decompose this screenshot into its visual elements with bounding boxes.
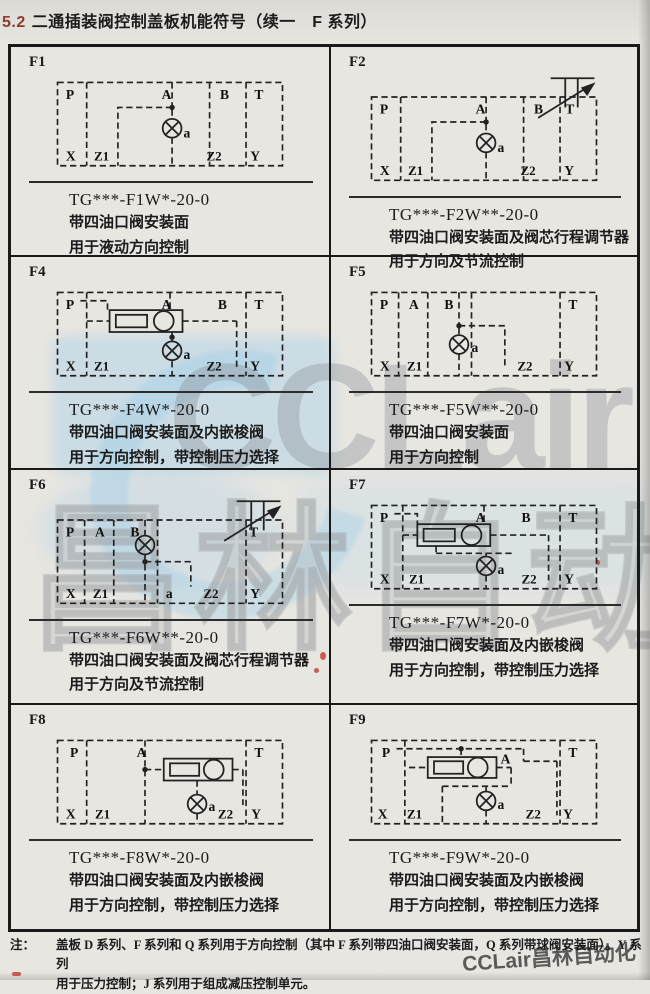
port-label: A — [137, 745, 147, 760]
port-label: X — [378, 807, 388, 822]
port-label: B — [534, 102, 543, 117]
cell-separator — [29, 391, 313, 393]
port-label: T — [568, 510, 577, 525]
model-code: TG***-F4W*-20-0 — [69, 400, 329, 420]
cell-label: F7 — [349, 477, 637, 494]
port-label: Z1 — [409, 572, 424, 587]
f9-schematic: P A T X Z1 a Z2 Y — [359, 730, 609, 832]
port-label: X — [66, 807, 76, 822]
port-label: Z1 — [408, 163, 423, 178]
cell-label: F4 — [29, 264, 329, 281]
footnote-line: 用于压力控制；J 系列用于组成减压控制单元。 — [0, 975, 650, 994]
port-label: X — [380, 359, 390, 374]
description-line: 用于方向控制，带控制压力选择 — [389, 895, 637, 918]
port-label: Z1 — [94, 359, 109, 374]
model-code: TG***-F5W**-20-0 — [389, 400, 637, 420]
port-label: Z2 — [203, 586, 218, 601]
port-label: a — [209, 799, 216, 814]
port-label: Z2 — [521, 572, 536, 587]
cell-f7: F7 P A B T X Z1 a Z — [331, 470, 637, 705]
port-label: P — [380, 102, 388, 117]
cell-label: F9 — [349, 712, 637, 729]
port-label: X — [380, 163, 390, 178]
f2-schematic: P A B T X Z1 a Z2 Y — [359, 72, 609, 189]
footnote: 注： 盖板 D 系列、F 系列和 Q 系列用于方向控制（其中 F 系列带四油口阀… — [0, 936, 650, 994]
cell-f5: F5 P A B T X Z1 a Z2 Y TG***-F5W**-20-0 … — [331, 257, 637, 470]
port-label: A — [95, 525, 105, 540]
port-label: Z2 — [520, 163, 535, 178]
cell-label: F2 — [349, 54, 637, 71]
port-label: a — [166, 586, 173, 601]
cell-separator — [29, 181, 313, 183]
description-line: 带四油口阀安装面及内嵌梭阀 — [69, 870, 329, 893]
cell-separator — [349, 604, 621, 606]
diagram-lines — [58, 740, 283, 823]
port-label: Z1 — [94, 149, 109, 164]
port-label: Z1 — [93, 586, 108, 601]
port-label: T — [568, 297, 577, 312]
diagram-lines — [372, 78, 597, 180]
port-label: P — [380, 510, 388, 525]
port-label: Z1 — [407, 359, 422, 374]
port-label: B — [220, 87, 229, 102]
port-label: Y — [564, 572, 574, 587]
cell-label: F1 — [29, 54, 329, 71]
model-code: TG***-F8W*-20-0 — [69, 848, 329, 868]
port-label: X — [380, 572, 390, 587]
port-label: A — [476, 510, 486, 525]
f7-schematic: P A B T X Z1 a Z2 Y — [359, 495, 609, 597]
port-label: B — [218, 297, 227, 312]
port-label: Y — [250, 586, 260, 601]
cell-separator — [349, 196, 621, 198]
description-line: 用于方向控制 — [389, 447, 637, 470]
description-line: 用于方向控制，带控制压力选择 — [69, 895, 329, 918]
cell-label: F5 — [349, 264, 637, 281]
f4-schematic: P A B T X Z1 a Z2 Y — [45, 282, 295, 384]
port-label: T — [249, 525, 258, 540]
model-code: TG***-F6W**-20-0 — [69, 628, 329, 648]
port-label: a — [498, 562, 505, 577]
port-label: A — [501, 751, 511, 766]
description-line: 带四油口阀安装面及内嵌梭阀 — [389, 870, 637, 893]
port-label: P — [66, 525, 74, 540]
model-code: TG***-F2W**-20-0 — [389, 205, 637, 225]
cell-f4: F4 P A B T X Z1 — [11, 257, 331, 470]
port-label: P — [380, 297, 388, 312]
port-label: B — [521, 510, 530, 525]
page-title: 5.2二通插装阀控制盖板机能符号（续一 F 系列） — [2, 8, 377, 32]
port-label: B — [444, 297, 453, 312]
description-line: 带四油口阀安装面及阀芯行程调节器 — [69, 650, 329, 673]
description-line: 带四油口阀安装面及内嵌梭阀 — [69, 422, 329, 445]
shuttle-valve-icon — [164, 759, 233, 781]
cell-f9: F9 P A T X Z1 a — [331, 705, 637, 929]
cell-separator — [29, 839, 313, 841]
diagram-lines — [372, 292, 597, 375]
port-label: a — [498, 140, 505, 155]
port-label: a — [184, 347, 191, 362]
cell-f1: F1 P A B T X Z1 a Z2 Y TG***-F1W*-20-0 带… — [11, 47, 331, 257]
port-label: X — [66, 149, 76, 164]
port-label: Y — [563, 807, 573, 822]
description-line: 带四油口阀安装面及内嵌梭阀 — [389, 635, 637, 658]
port-label: T — [254, 745, 263, 760]
cell-label: F8 — [29, 712, 329, 729]
port-label: a — [472, 340, 479, 355]
port-label: Z1 — [95, 807, 110, 822]
port-label: P — [66, 297, 74, 312]
port-label: T — [254, 87, 263, 102]
port-label: Y — [564, 163, 574, 178]
catalog-page: { "page": {"background": "#e7e6e1", "tab… — [0, 0, 650, 980]
port-label: A — [476, 102, 486, 117]
port-label: T — [565, 102, 574, 117]
port-label: a — [184, 126, 191, 141]
model-code: TG***-F1W*-20-0 — [69, 190, 329, 210]
port-label: a — [498, 797, 505, 812]
port-label: T — [568, 745, 577, 760]
cell-separator — [349, 839, 621, 841]
port-label: Z1 — [407, 807, 422, 822]
cell-separator — [349, 391, 621, 393]
port-label: A — [162, 87, 172, 102]
port-label: Z2 — [526, 807, 541, 822]
port-label: T — [254, 297, 263, 312]
description-line: 用于方向控制，带控制压力选择 — [389, 660, 637, 683]
port-label: Y — [564, 359, 574, 374]
port-label: Y — [250, 359, 260, 374]
port-label: P — [70, 745, 78, 760]
shuttle-valve-icon — [428, 757, 497, 778]
port-label: P — [382, 745, 390, 760]
model-code: TG***-F9W*-20-0 — [389, 848, 637, 868]
cell-f2: F2 P A B T X Z1 a Z2 Y — [331, 47, 637, 257]
section-title-text: 二通插装阀控制盖板机能符号（续一 F 系列） — [32, 14, 377, 31]
port-label: P — [66, 87, 74, 102]
description-line: 用于液动方向控制 — [69, 237, 329, 260]
cell-label: F6 — [29, 477, 329, 494]
f6-schematic: P A B T X Z1 a Z2 Y — [45, 495, 295, 612]
port-label: Z2 — [206, 149, 221, 164]
port-label: A — [409, 297, 419, 312]
description-line: 用于方向控制，带控制压力选择 — [69, 447, 329, 470]
description-line: 用于方向及节流控制 — [69, 674, 329, 697]
description-line: 带四油口阀安装面 — [389, 422, 637, 445]
port-label: A — [162, 297, 172, 312]
port-label: Z2 — [517, 359, 532, 374]
description-line: 带四油口阀安装面 — [69, 212, 329, 235]
model-code: TG***-F7W*-20-0 — [389, 613, 637, 633]
port-label: X — [66, 586, 76, 601]
cell-f6: F6 P A B T X Z1 a Z2 Y — [11, 470, 331, 705]
footnote-prefix: 注： — [10, 936, 35, 955]
footnote-line: 盖板 D 系列、F 系列和 Q 系列用于方向控制（其中 F 系列带四油口阀安装面… — [0, 936, 650, 975]
cell-separator — [29, 619, 313, 621]
shuttle-valve-icon — [110, 310, 183, 332]
description-line: 带四油口阀安装面及阀芯行程调节器 — [389, 227, 637, 250]
f1-schematic: P A B T X Z1 a Z2 Y — [45, 72, 295, 174]
shuttle-valve-icon — [417, 524, 490, 546]
port-label: Z2 — [206, 359, 221, 374]
port-label: Y — [251, 807, 261, 822]
f8-schematic: P A T X Z1 a Z2 Y — [45, 730, 295, 832]
port-label: B — [130, 525, 139, 540]
port-label: Z2 — [218, 807, 233, 822]
cell-f8: F8 P A T X Z1 a — [11, 705, 331, 929]
port-label: Y — [250, 149, 260, 164]
f5-schematic: P A B T X Z1 a Z2 Y — [359, 282, 609, 384]
section-number: 5.2 — [2, 14, 26, 31]
symbol-table: F1 P A B T X Z1 a Z2 Y TG***-F1W*-20-0 带… — [8, 44, 640, 932]
port-label: X — [66, 359, 76, 374]
